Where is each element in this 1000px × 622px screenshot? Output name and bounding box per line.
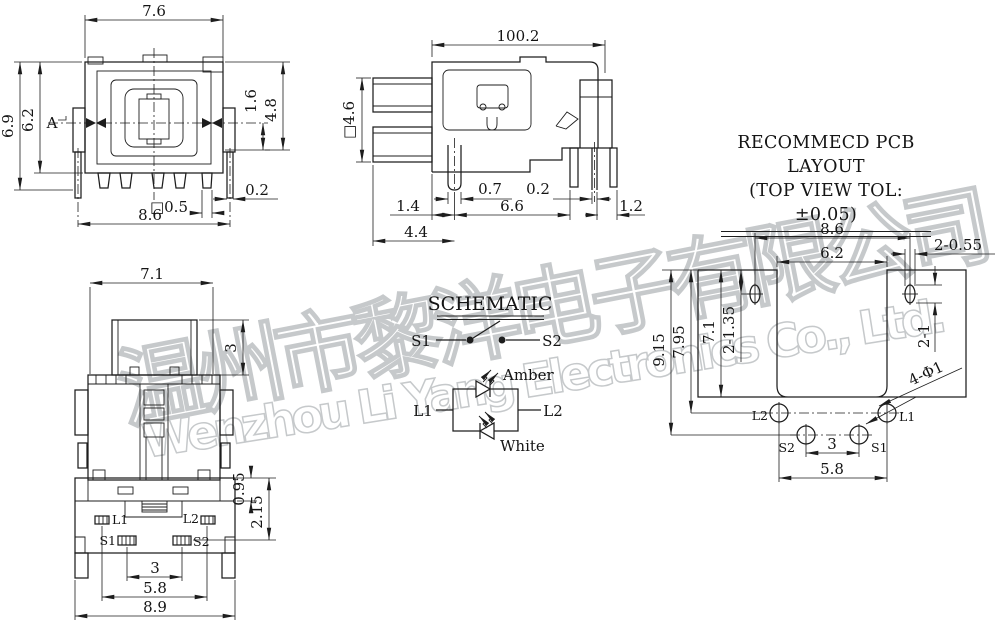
front-view-dimensions: 7.6 6.9 6.2 A 1.6 4.8 0.2 □0.5 8.6 bbox=[0, 2, 290, 224]
bottom-view-body: L1 L2 S1 S2 bbox=[75, 320, 235, 578]
dim-pcb-led-pitch: 5.8 bbox=[820, 460, 844, 478]
dim-front-pin-drop: 1.6 bbox=[242, 89, 260, 113]
schematic-amber-label: Amber bbox=[502, 366, 555, 384]
bottom-view-dimensions: 7.1 3 0.95 2.15 3 5.8 8.9 bbox=[75, 265, 276, 620]
dim-bottom-switch-pitch: 3 bbox=[150, 559, 160, 577]
bottom-pin-label-l1: L1 bbox=[112, 512, 128, 527]
dim-side-pin-thickness: 0.2 bbox=[526, 180, 550, 198]
dim-front-pin-width: 0.2 bbox=[245, 181, 269, 199]
schematic-s1-label: S1 bbox=[411, 332, 431, 350]
dim-side-right-offset: 1.2 bbox=[619, 197, 643, 215]
dim-side-pin-pitch: 6.6 bbox=[500, 197, 524, 215]
dim-pcb-switch-pitch: 3 bbox=[827, 435, 837, 453]
dim-bottom-led-row-offset: 0.95 bbox=[230, 472, 248, 505]
schematic-content: SCHEMATIC S1 S2 L1 L2 Amber bbox=[411, 293, 563, 455]
dim-pcb-cavity-depth: 7.1 bbox=[700, 320, 718, 344]
side-view-drawing: 100.2 □4.6 0.7 0.2 1.4 6.6 1.2 4.4 bbox=[340, 15, 660, 250]
dim-pcb-slot-height: 2-1 bbox=[915, 324, 933, 348]
schematic-s2-label: S2 bbox=[542, 332, 562, 350]
dim-side-square-button: □4.6 bbox=[340, 101, 358, 139]
bottom-view-drawing: L1 L2 S1 S2 7.1 3 0.95 2.15 3 5.8 bbox=[30, 260, 290, 622]
dim-front-top-width: 7.6 bbox=[142, 2, 166, 20]
dim-side-left-offset: 1.4 bbox=[396, 197, 420, 215]
dim-side-post-width: 0.7 bbox=[478, 180, 502, 198]
dim-front-total-height: 6.9 bbox=[0, 114, 17, 138]
drawing-sheet: 温州市黎洋电子有限公司 Wenzhou Li Yang Electronics … bbox=[0, 0, 1000, 622]
pcb-dimensions: 8.6 6.2 2-0.55 9.15 7.95 7.1 2-1.35 bbox=[650, 220, 995, 482]
pcb-layout-title: RECOMMECD PCB LAYOUT bbox=[721, 131, 931, 179]
dim-pcb-slot-row: 2-1.35 bbox=[720, 306, 738, 354]
dim-bottom-base-width: 8.9 bbox=[143, 598, 167, 616]
front-view-drawing: 7.6 6.9 6.2 A 1.6 4.8 0.2 □0.5 8.6 bbox=[0, 0, 300, 240]
dim-front-pin-span: 8.6 bbox=[138, 206, 162, 224]
pcb-layout-drawing: 8.6 6.2 2-0.55 9.15 7.95 7.1 2-1.35 bbox=[655, 225, 1000, 491]
led-white-symbol bbox=[479, 412, 494, 439]
dim-pcb-slot-span: 8.6 bbox=[820, 220, 844, 238]
dim-bottom-button-height: 3 bbox=[222, 343, 240, 353]
dim-pcb-cavity-width: 6.2 bbox=[820, 244, 844, 262]
pcb-hole-label-l2: L2 bbox=[752, 408, 768, 423]
led-amber-symbol bbox=[476, 370, 498, 397]
dim-pcb-total-depth: 9.15 bbox=[650, 333, 668, 366]
pcb-outline bbox=[698, 270, 966, 446]
side-view-dimensions: 100.2 □4.6 0.7 0.2 1.4 6.6 1.2 4.4 bbox=[340, 27, 645, 246]
dim-pcb-slot-width: 2-0.55 bbox=[934, 236, 982, 254]
dim-bottom-top-width: 7.1 bbox=[140, 265, 164, 283]
dim-front-body-height: 6.2 bbox=[19, 108, 37, 132]
pcb-hole-label-l1: L1 bbox=[899, 409, 915, 424]
pcb-hole-label-s2: S2 bbox=[778, 440, 795, 455]
bottom-pin-label-l2: L2 bbox=[183, 511, 199, 526]
dim-bottom-led-pitch: 5.8 bbox=[143, 579, 167, 597]
dim-side-total-length: 100.2 bbox=[497, 27, 540, 45]
schematic-drawing: SCHEMATIC S1 S2 L1 L2 Amber bbox=[400, 288, 605, 463]
pcb-hole-label-s1: S1 bbox=[871, 440, 888, 455]
dim-pcb-led-row: 7.95 bbox=[670, 325, 688, 358]
dim-bottom-switch-row-offset: 2.15 bbox=[248, 495, 266, 528]
section-label-a: A bbox=[46, 114, 58, 132]
schematic-white-label: White bbox=[500, 437, 545, 455]
schematic-l1-label: L1 bbox=[413, 402, 433, 420]
dim-side-front-depth: 4.4 bbox=[404, 223, 428, 241]
schematic-l2-label: L2 bbox=[543, 402, 563, 420]
dim-front-flange-height: 4.8 bbox=[262, 98, 280, 122]
schematic-title: SCHEMATIC bbox=[428, 293, 553, 315]
